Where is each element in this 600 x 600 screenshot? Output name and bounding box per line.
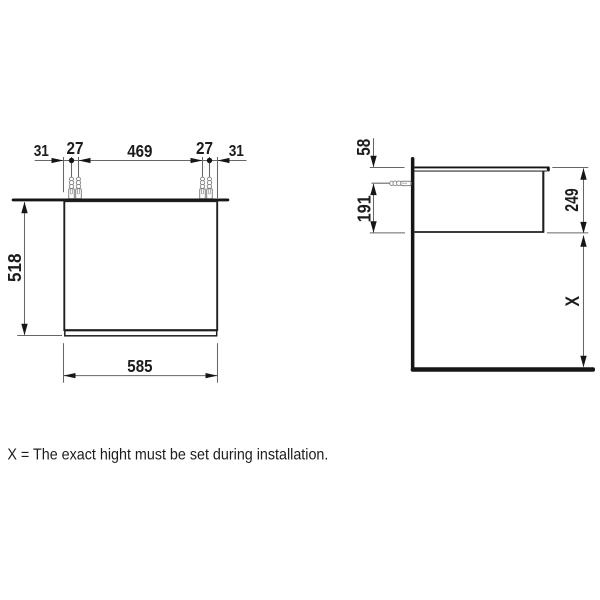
svg-text:585: 585 (127, 356, 152, 376)
svg-text:191: 191 (354, 195, 375, 222)
svg-text:31: 31 (229, 143, 244, 160)
svg-text:27: 27 (196, 138, 213, 158)
svg-text:518: 518 (4, 254, 25, 283)
svg-text:X = The exact hight must be se: X = The exact hight must be set during i… (7, 446, 328, 463)
svg-text:249: 249 (562, 188, 582, 211)
svg-text:27: 27 (67, 138, 84, 158)
svg-text:X: X (563, 296, 584, 307)
svg-text:31: 31 (34, 143, 49, 160)
svg-text:58: 58 (353, 139, 374, 156)
svg-text:469: 469 (127, 141, 152, 161)
